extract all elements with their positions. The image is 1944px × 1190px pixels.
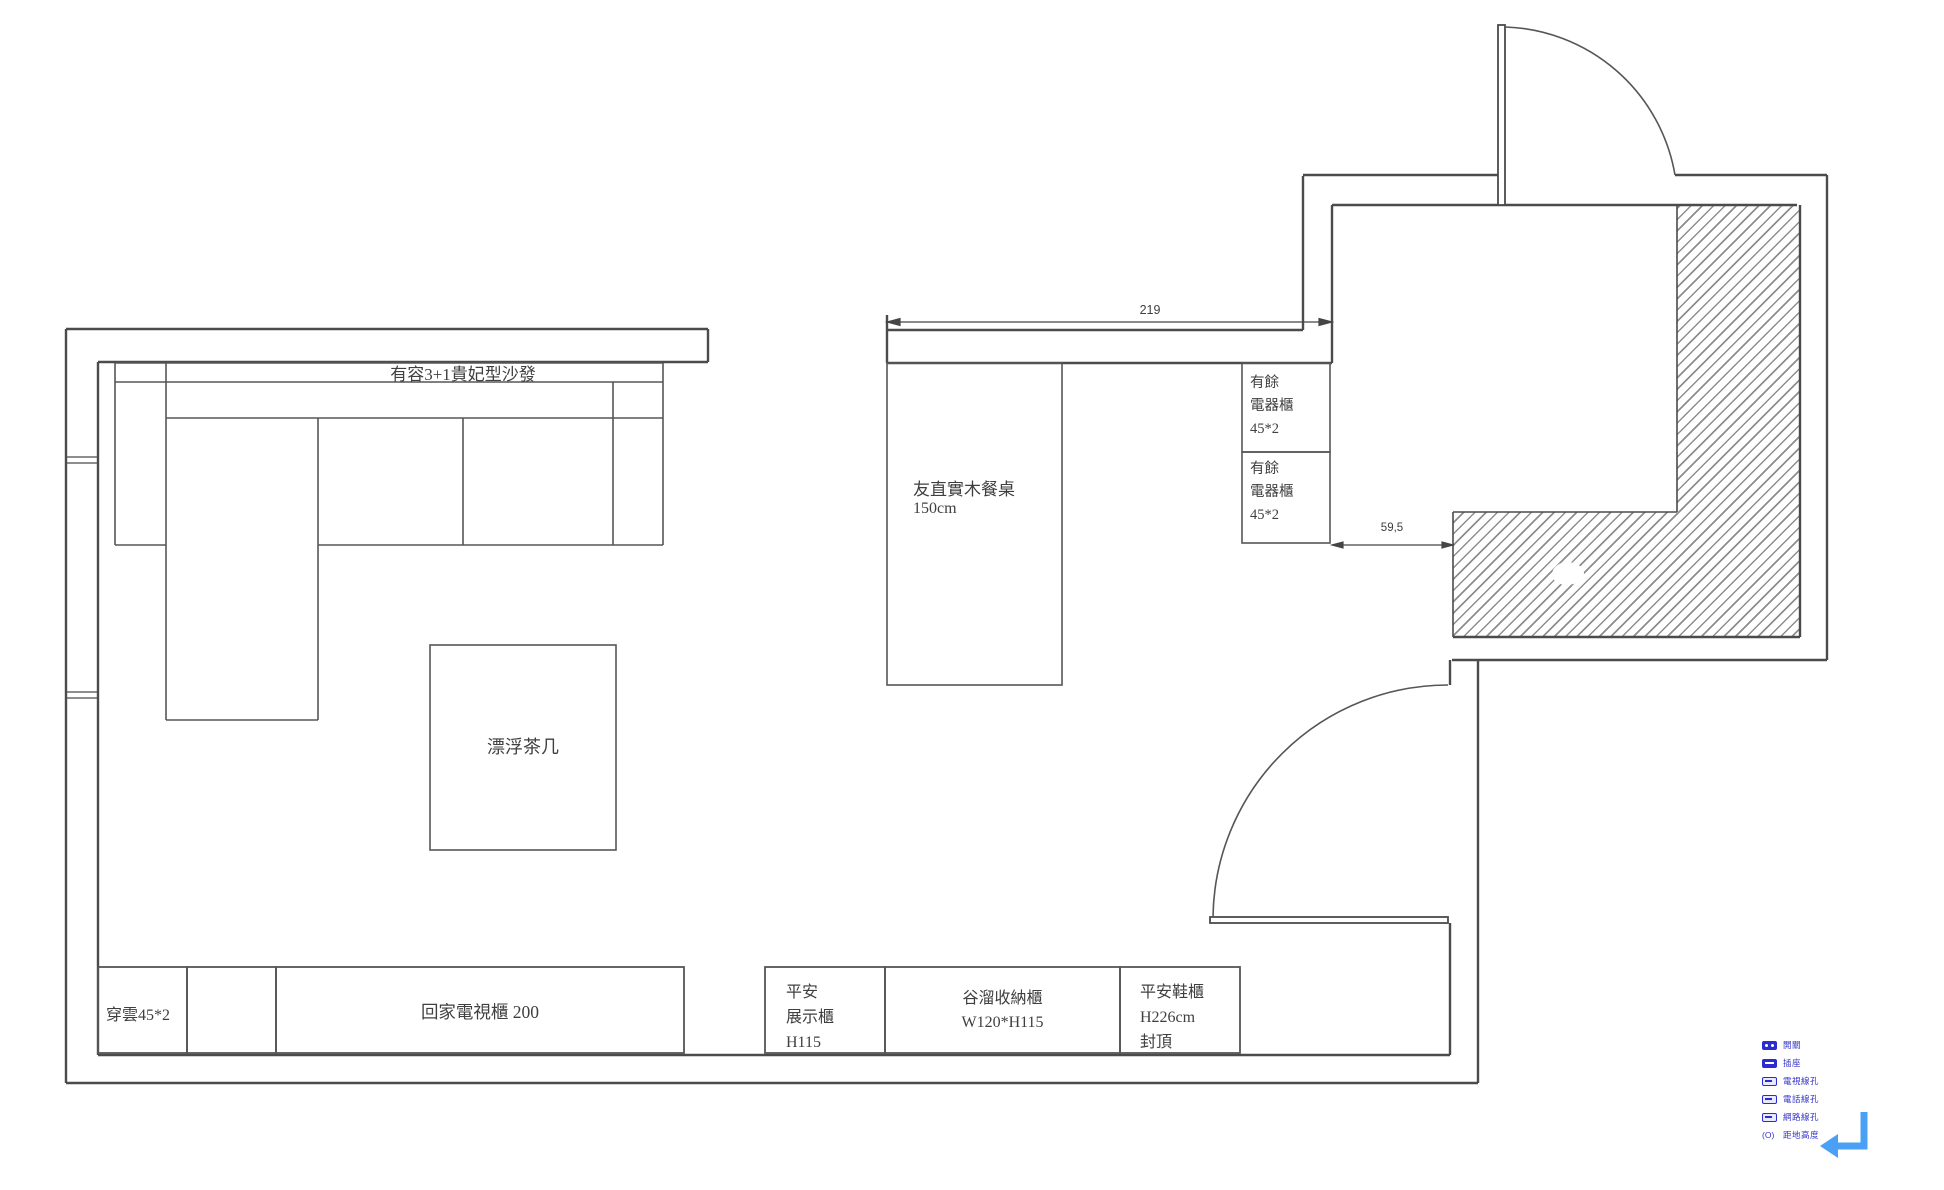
outlet-icon — [1762, 1059, 1777, 1068]
shoe-cabinet-label: 平安鞋櫃 H226cm 封頂 — [1140, 980, 1204, 1055]
walls — [66, 175, 1827, 1083]
storage-cabinet-label: 谷溜收納櫃 W120*H115 — [885, 987, 1120, 1035]
dimension-59-5: 59,5 — [1362, 522, 1422, 534]
appliance-cabinet-2-label: 有餘 電器櫃 45*2 — [1250, 458, 1294, 527]
legend-row: 電視線孔 — [1762, 1072, 1882, 1090]
floorplan-page: 有容3+1貴妃型沙發 漂浮茶几 友直實木餐桌 150cm 有餘 電器櫃 45*2… — [0, 0, 1944, 1190]
sofa-outline — [115, 363, 663, 720]
entry-door — [1210, 685, 1448, 923]
sofa-label: 有容3+1貴妃型沙發 — [353, 360, 573, 385]
floor-height-icon: (O) — [1762, 1130, 1777, 1140]
dining-table-outline — [887, 363, 1062, 685]
network-line-icon — [1762, 1113, 1777, 1122]
tv-line-icon — [1762, 1077, 1777, 1086]
appliance-cabinet-1-label: 有餘 電器櫃 45*2 — [1250, 372, 1294, 441]
legend-row: 開關 — [1762, 1036, 1882, 1054]
return-arrow-button[interactable] — [1818, 1108, 1882, 1160]
coffee-table-label: 漂浮茶几 — [443, 733, 603, 759]
legend-row: 電話線孔 — [1762, 1090, 1882, 1108]
tv-cabinet-label: 回家電視櫃 200 — [330, 999, 630, 1024]
legend-row: 插座 — [1762, 1054, 1882, 1072]
dining-table-label: 友直實木餐桌 150cm — [913, 475, 1015, 518]
dimension-219: 219 — [1120, 303, 1180, 317]
phone-line-icon — [1762, 1095, 1777, 1104]
switch-icon — [1762, 1041, 1777, 1050]
chuanyun-cabinet-label: 穿雲45*2 — [106, 1001, 170, 1025]
top-door — [1498, 25, 1675, 205]
display-cabinet-label: 平安 展示櫃 H115 — [786, 980, 834, 1055]
